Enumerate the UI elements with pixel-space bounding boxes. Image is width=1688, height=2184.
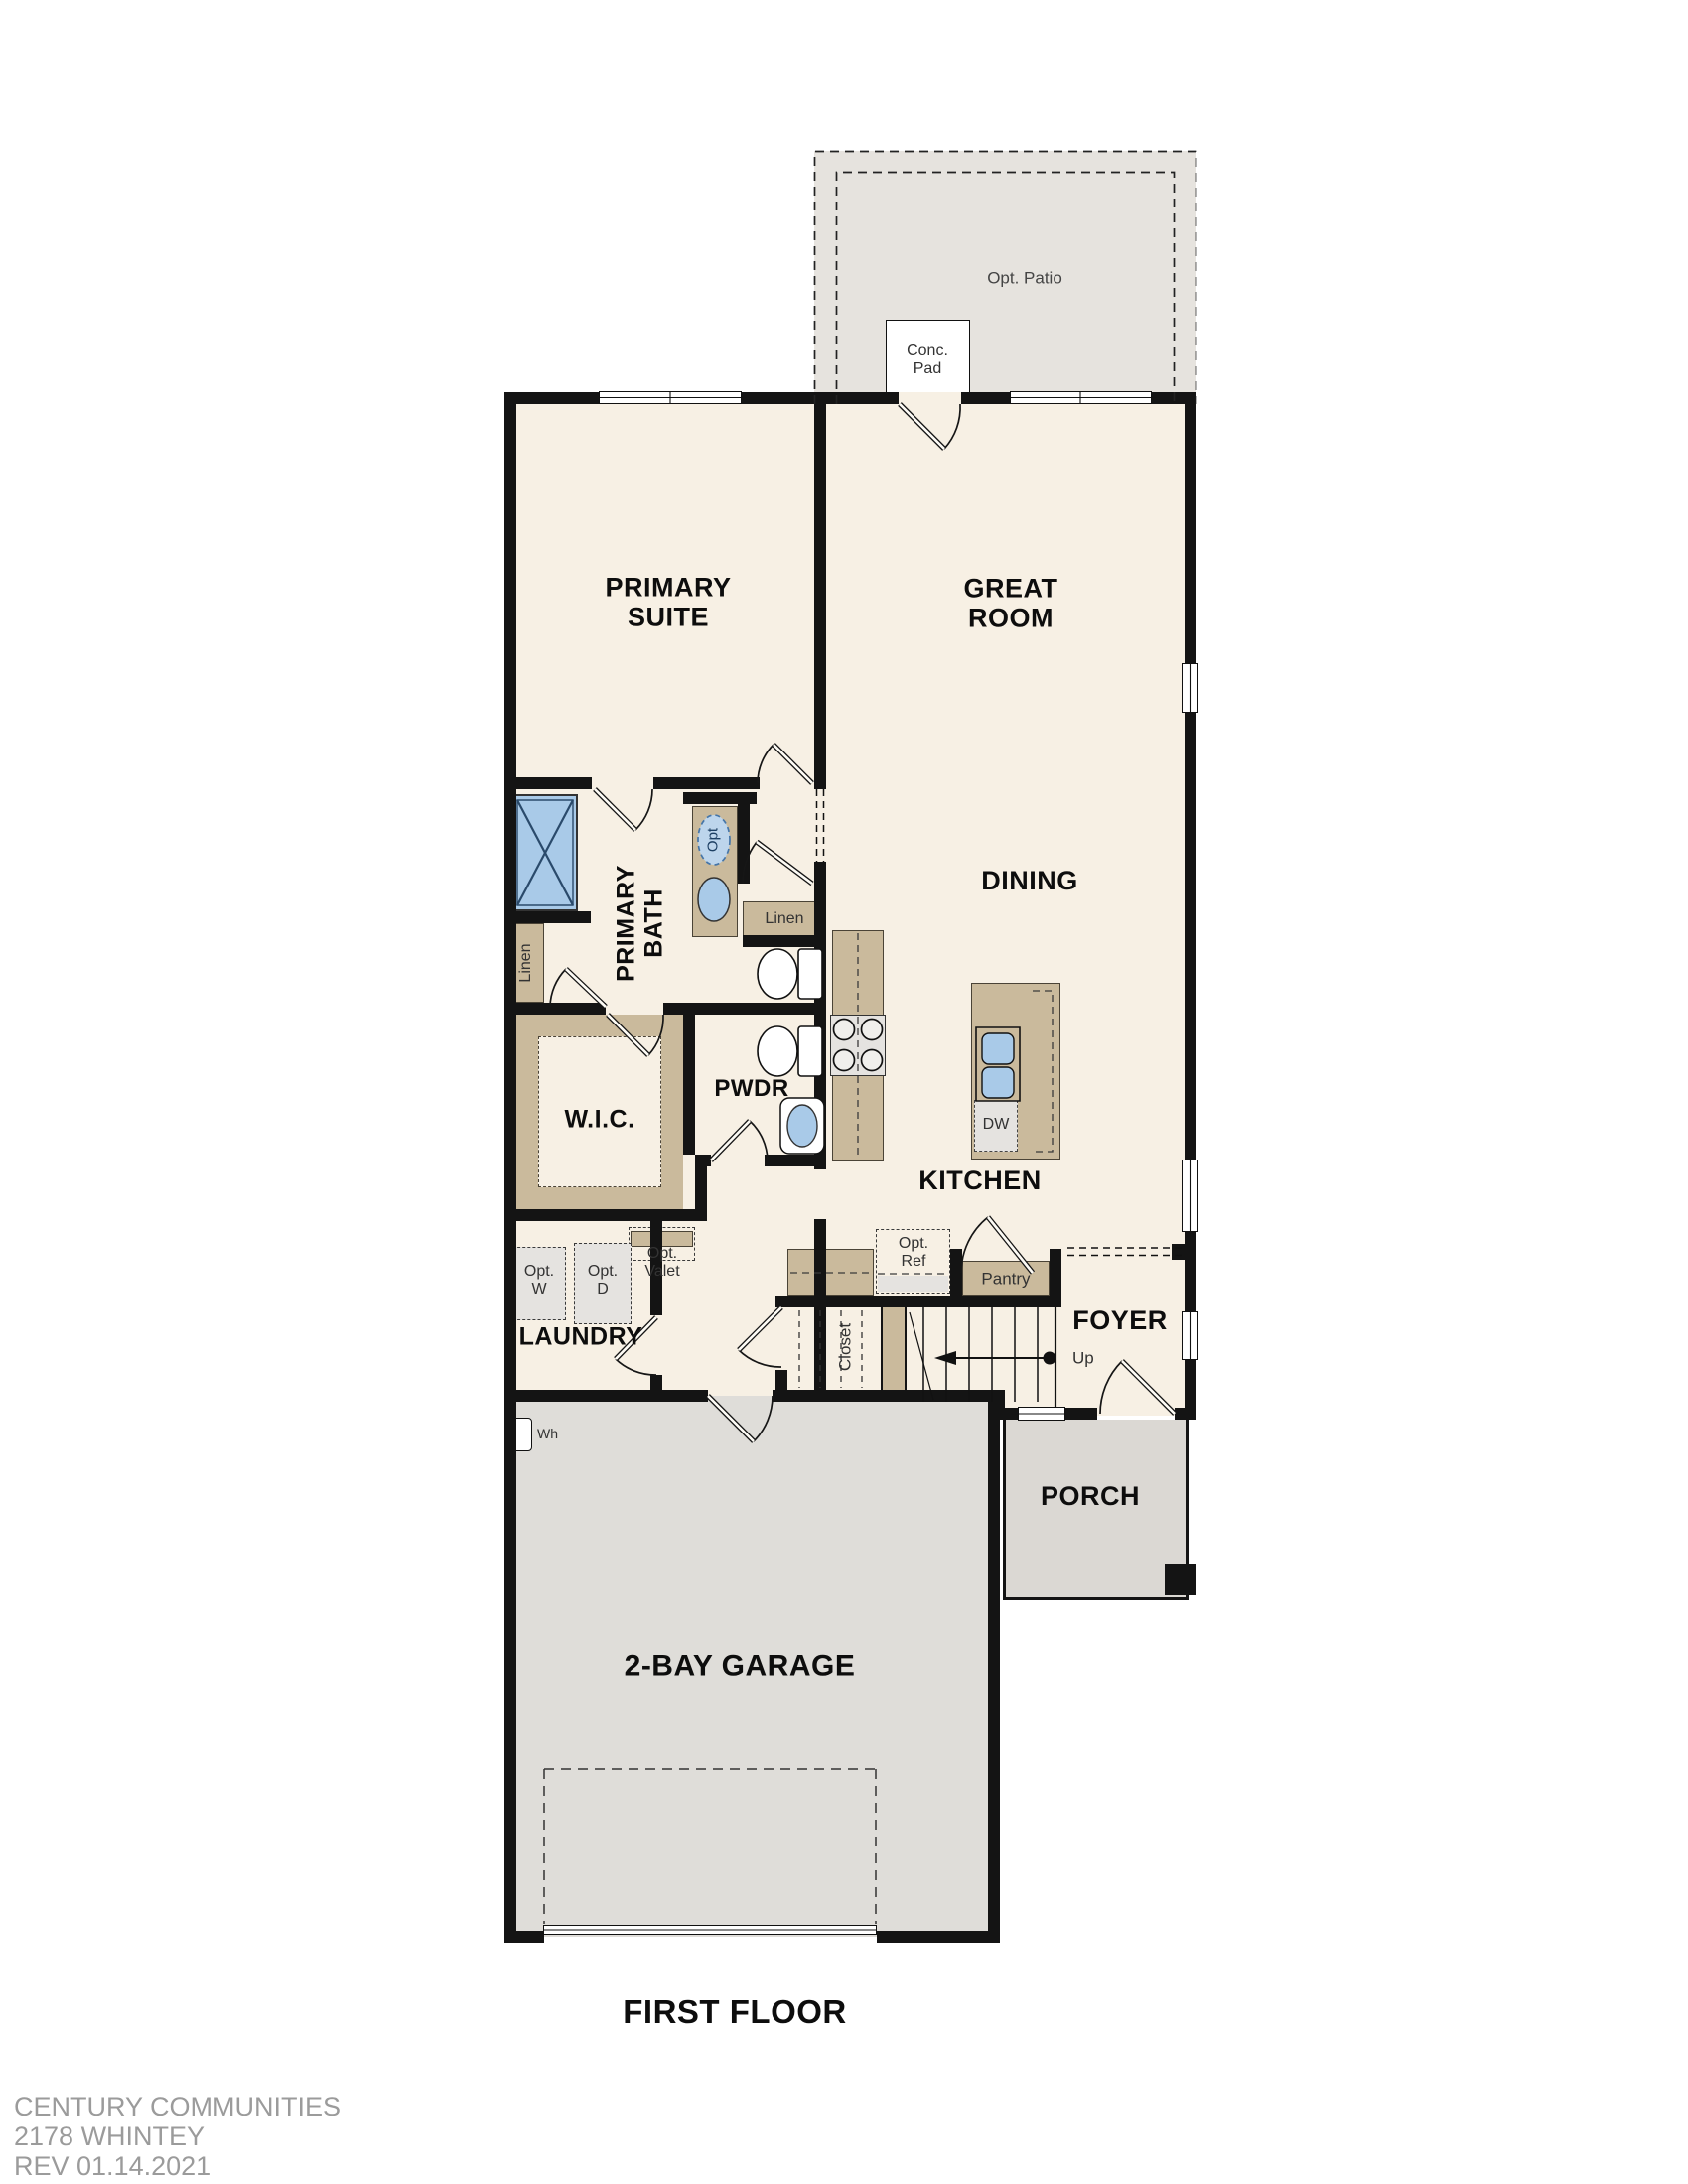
label-dishwasher: DW [983, 1116, 1010, 1134]
label-opt-washer: Opt. W [524, 1263, 554, 1298]
label-closet: Closet [835, 1323, 854, 1371]
label-opt-valet: Opt. Valet [644, 1245, 679, 1281]
counter-dashes [790, 933, 1053, 1274]
footer-company: CENTURY COMMUNITIES [14, 2092, 341, 2122]
toilet-pwdr [758, 1026, 822, 1076]
room-label-porch: PORCH [1041, 1482, 1140, 1512]
plan-linework [0, 0, 1688, 2184]
room-label-dining: DINING [981, 867, 1078, 896]
label-opt-fixture: Opt [706, 828, 723, 852]
label-conc-pad: Conc. Pad [907, 342, 948, 378]
label-opt-patio: Opt. Patio [987, 268, 1062, 287]
label-pantry: Pantry [981, 1269, 1030, 1288]
room-label-laundry: LAUNDRY [519, 1323, 643, 1351]
room-label-kitchen: KITCHEN [918, 1166, 1042, 1196]
driveway-outline [544, 1769, 876, 1924]
room-label-primary-bath: PRIMARY BATH [614, 865, 668, 982]
label-linen-left: Linen [517, 943, 535, 982]
room-label-pwdr: PWDR [714, 1076, 788, 1102]
label-up: Up [1072, 1348, 1094, 1367]
room-label-foyer: FOYER [1072, 1306, 1168, 1336]
toilet-bath [758, 949, 822, 999]
plan-title: FIRST FLOOR [623, 1994, 846, 2030]
label-linen-right: Linen [765, 910, 803, 928]
bathtub-detail [517, 800, 573, 905]
room-label-garage: 2-BAY GARAGE [625, 1650, 856, 1683]
room-label-primary-suite: PRIMARY SUITE [605, 573, 731, 631]
floor-plan: PRIMARY SUITE GREAT ROOM DINING KITCHEN … [0, 0, 1688, 2184]
pwdr-sink [780, 1098, 824, 1154]
room-label-great-room: GREAT ROOM [964, 574, 1058, 632]
label-opt-ref: Opt. Ref [899, 1235, 928, 1271]
island-sink [976, 1027, 1020, 1101]
room-label-wic: W.I.C. [564, 1106, 634, 1134]
label-opt-dryer: Opt. D [588, 1263, 618, 1298]
label-water-heater: Wh [537, 1427, 558, 1442]
footer-plan-name: 2178 WHINTEY [14, 2121, 205, 2152]
footer-revision: REV 01.14.2021 [14, 2151, 211, 2182]
